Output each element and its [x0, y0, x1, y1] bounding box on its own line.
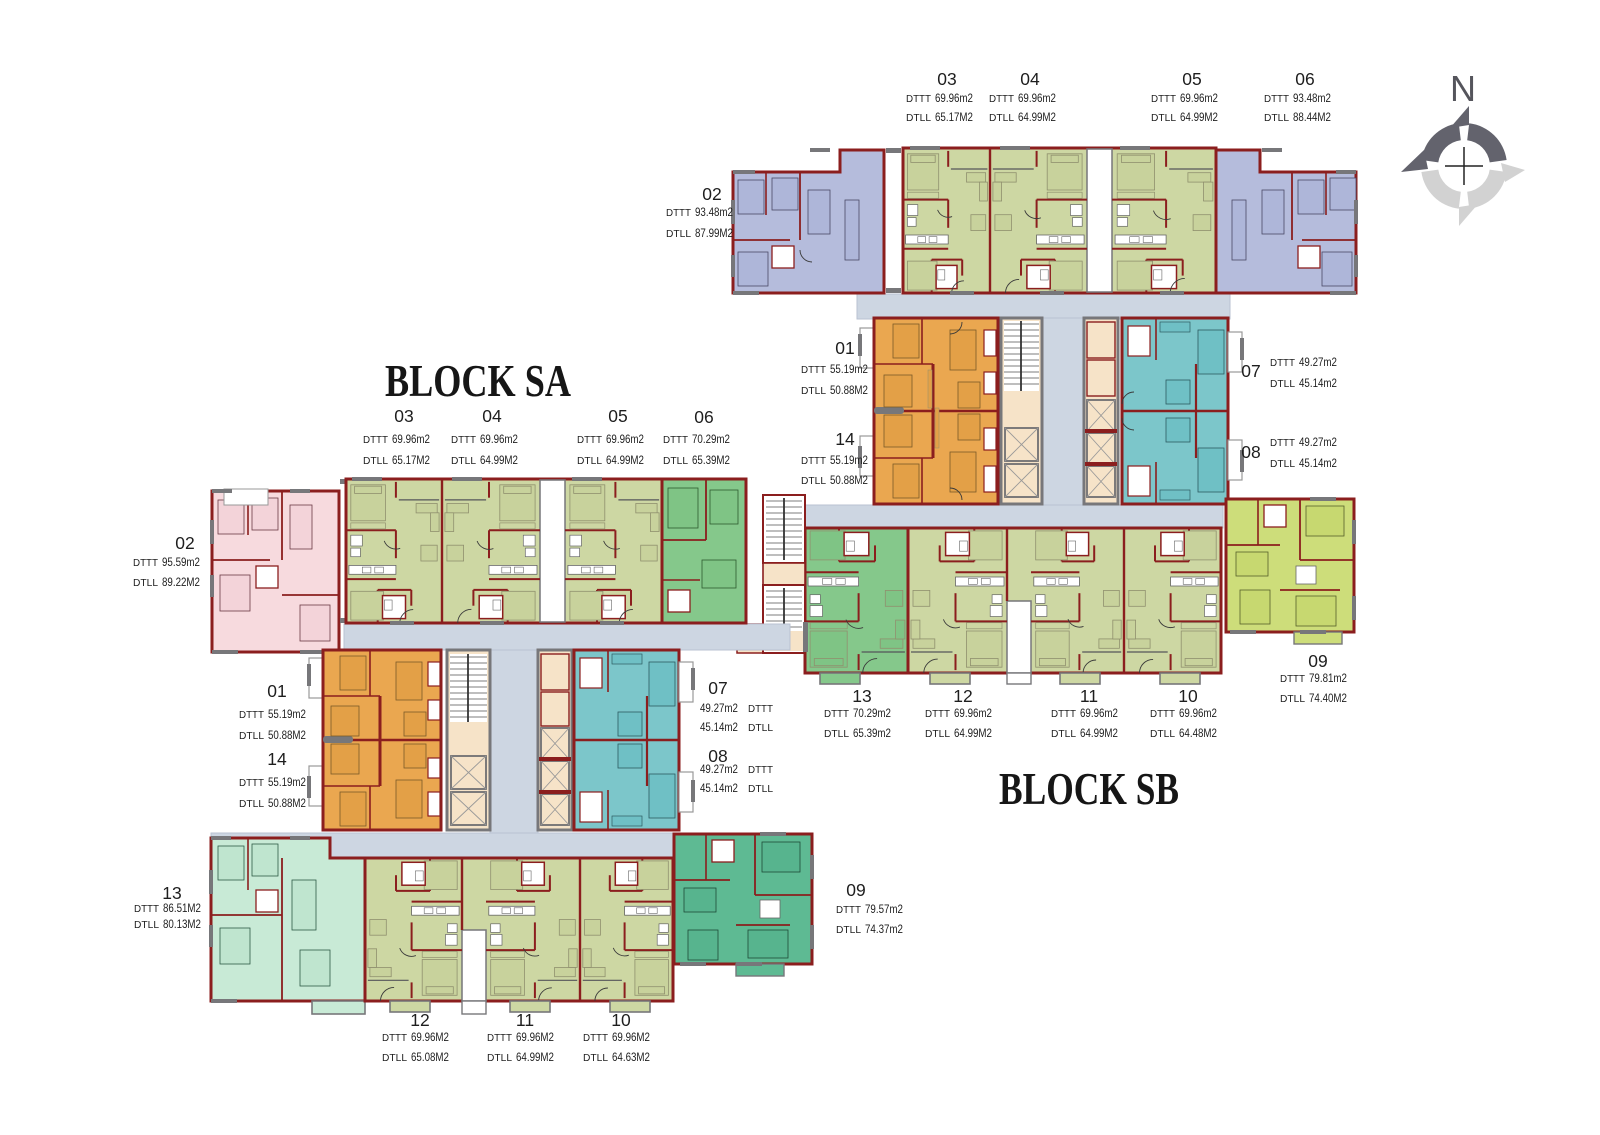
- svg-text:69.96m2: 69.96m2: [1018, 93, 1056, 105]
- svg-text:45.14m2: 45.14m2: [700, 722, 738, 734]
- svg-text:45.14m2: 45.14m2: [1299, 378, 1337, 390]
- svg-text:09: 09: [846, 880, 865, 900]
- svg-text:DTLL: DTLL: [748, 784, 773, 795]
- svg-text:DTLL: DTLL: [239, 731, 264, 742]
- svg-text:05: 05: [1182, 69, 1201, 89]
- svg-text:DTTT: DTTT: [134, 904, 159, 915]
- svg-text:69.96M2: 69.96M2: [612, 1032, 650, 1044]
- svg-text:64.99M2: 64.99M2: [954, 728, 992, 740]
- svg-text:10: 10: [611, 1010, 631, 1030]
- svg-text:49.27m2: 49.27m2: [1299, 357, 1337, 369]
- svg-text:64.99M2: 64.99M2: [480, 455, 518, 467]
- svg-text:07: 07: [708, 678, 727, 698]
- svg-text:09: 09: [1308, 651, 1327, 671]
- svg-text:49.27m2: 49.27m2: [700, 764, 738, 776]
- svg-text:50.88M2: 50.88M2: [268, 798, 306, 810]
- svg-text:04: 04: [1020, 69, 1040, 89]
- svg-text:55.19m2: 55.19m2: [830, 455, 868, 467]
- svg-text:55.19m2: 55.19m2: [268, 777, 306, 789]
- svg-text:14: 14: [267, 749, 287, 769]
- svg-text:50.88M2: 50.88M2: [830, 475, 868, 487]
- svg-text:08: 08: [708, 746, 727, 766]
- svg-text:79.57m2: 79.57m2: [865, 904, 903, 916]
- svg-text:DTLL: DTLL: [989, 113, 1014, 124]
- svg-text:DTLL: DTLL: [1270, 459, 1295, 470]
- svg-text:49.27m2: 49.27m2: [1299, 437, 1337, 449]
- svg-text:DTTT: DTTT: [1151, 94, 1176, 105]
- svg-text:DTTT: DTTT: [1051, 709, 1076, 720]
- svg-text:DTLL: DTLL: [663, 456, 688, 467]
- svg-text:DTLL: DTLL: [836, 925, 861, 936]
- svg-text:49.27m2: 49.27m2: [700, 703, 738, 715]
- svg-text:93.48m2: 93.48m2: [695, 207, 733, 219]
- svg-text:DTLL: DTLL: [666, 229, 691, 240]
- svg-text:05: 05: [608, 406, 627, 426]
- svg-text:DTTT: DTTT: [801, 456, 826, 467]
- svg-text:69.96m2: 69.96m2: [392, 434, 430, 446]
- svg-text:69.96m2: 69.96m2: [1080, 708, 1118, 720]
- svg-text:69.96M2: 69.96M2: [516, 1032, 554, 1044]
- svg-text:69.96m2: 69.96m2: [1179, 708, 1217, 720]
- svg-text:95.59m2: 95.59m2: [162, 557, 200, 569]
- svg-text:DTTT: DTTT: [133, 558, 158, 569]
- svg-text:DTTT: DTTT: [487, 1033, 512, 1044]
- svg-text:02: 02: [175, 533, 194, 553]
- svg-text:80.13M2: 80.13M2: [163, 919, 201, 931]
- svg-text:DTLL: DTLL: [1270, 379, 1295, 390]
- svg-text:69.96m2: 69.96m2: [606, 434, 644, 446]
- svg-text:DTTT: DTTT: [577, 435, 602, 446]
- svg-text:69.96m2: 69.96m2: [935, 93, 973, 105]
- svg-text:DTLL: DTLL: [239, 799, 264, 810]
- svg-text:55.19m2: 55.19m2: [268, 709, 306, 721]
- svg-text:02: 02: [702, 184, 721, 204]
- svg-text:74.37m2: 74.37m2: [865, 924, 903, 936]
- svg-text:DTTT: DTTT: [663, 435, 688, 446]
- svg-text:14: 14: [835, 429, 855, 449]
- svg-text:01: 01: [835, 338, 854, 358]
- svg-text:64.99M2: 64.99M2: [1080, 728, 1118, 740]
- svg-text:DTLL: DTLL: [1150, 729, 1175, 740]
- svg-text:12: 12: [410, 1010, 429, 1030]
- svg-text:DTTT: DTTT: [1270, 358, 1295, 369]
- svg-text:DTLL: DTLL: [133, 578, 158, 589]
- svg-text:DTTT: DTTT: [451, 435, 476, 446]
- svg-text:65.08M2: 65.08M2: [411, 1052, 449, 1064]
- svg-text:88.44M2: 88.44M2: [1293, 112, 1331, 124]
- svg-text:BLOCK SB: BLOCK SB: [999, 763, 1179, 814]
- svg-text:70.29m2: 70.29m2: [853, 708, 891, 720]
- svg-text:DTLL: DTLL: [583, 1053, 608, 1064]
- svg-text:DTLL: DTLL: [134, 920, 159, 931]
- svg-text:N: N: [1450, 68, 1476, 109]
- svg-text:DTTT: DTTT: [239, 778, 264, 789]
- svg-text:DTTT: DTTT: [748, 765, 773, 776]
- svg-text:DTLL: DTLL: [1051, 729, 1076, 740]
- svg-text:DTTT: DTTT: [824, 709, 849, 720]
- svg-text:06: 06: [694, 407, 713, 427]
- svg-text:DTLL: DTLL: [748, 723, 773, 734]
- svg-text:DTLL: DTLL: [925, 729, 950, 740]
- svg-text:DTTT: DTTT: [1280, 674, 1305, 685]
- svg-text:69.96M2: 69.96M2: [411, 1032, 449, 1044]
- svg-text:13: 13: [852, 686, 871, 706]
- svg-text:DTTT: DTTT: [1264, 94, 1289, 105]
- svg-text:13: 13: [162, 883, 181, 903]
- svg-text:DTLL: DTLL: [1151, 113, 1176, 124]
- svg-text:64.63M2: 64.63M2: [612, 1052, 650, 1064]
- svg-text:BLOCK SA: BLOCK SA: [385, 355, 571, 406]
- svg-text:69.96m2: 69.96m2: [954, 708, 992, 720]
- svg-text:DTTT: DTTT: [906, 94, 931, 105]
- svg-text:70.29m2: 70.29m2: [692, 434, 730, 446]
- svg-text:DTTT: DTTT: [801, 365, 826, 376]
- svg-text:93.48m2: 93.48m2: [1293, 93, 1331, 105]
- svg-text:08: 08: [1241, 442, 1260, 462]
- svg-text:86.51M2: 86.51M2: [163, 903, 201, 915]
- svg-text:65.17M2: 65.17M2: [392, 455, 430, 467]
- svg-text:DTTT: DTTT: [1150, 709, 1175, 720]
- svg-text:DTTT: DTTT: [1270, 438, 1295, 449]
- svg-text:DTLL: DTLL: [382, 1053, 407, 1064]
- svg-text:74.40M2: 74.40M2: [1309, 693, 1347, 705]
- svg-text:12: 12: [953, 686, 972, 706]
- svg-text:50.88M2: 50.88M2: [830, 385, 868, 397]
- svg-text:64.99M2: 64.99M2: [1180, 112, 1218, 124]
- svg-text:64.99M2: 64.99M2: [516, 1052, 554, 1064]
- svg-text:50.88M2: 50.88M2: [268, 730, 306, 742]
- svg-text:55.19m2: 55.19m2: [830, 364, 868, 376]
- svg-text:DTTT: DTTT: [666, 208, 691, 219]
- svg-text:64.99M2: 64.99M2: [606, 455, 644, 467]
- svg-text:DTTT: DTTT: [363, 435, 388, 446]
- svg-text:04: 04: [482, 406, 502, 426]
- svg-text:69.96m2: 69.96m2: [1180, 93, 1218, 105]
- svg-text:45.14m2: 45.14m2: [700, 783, 738, 795]
- svg-text:11: 11: [1080, 686, 1098, 706]
- svg-text:DTTT: DTTT: [836, 905, 861, 916]
- svg-text:87.99M2: 87.99M2: [695, 228, 733, 240]
- svg-text:DTLL: DTLL: [487, 1053, 512, 1064]
- svg-text:69.96m2: 69.96m2: [480, 434, 518, 446]
- svg-text:11: 11: [516, 1010, 534, 1030]
- svg-text:06: 06: [1295, 69, 1314, 89]
- svg-text:65.17M2: 65.17M2: [935, 112, 973, 124]
- svg-text:DTLL: DTLL: [824, 729, 849, 740]
- svg-text:DTTT: DTTT: [748, 704, 773, 715]
- svg-text:DTTT: DTTT: [239, 710, 264, 721]
- svg-text:65.39M2: 65.39M2: [692, 455, 730, 467]
- svg-text:DTTT: DTTT: [989, 94, 1014, 105]
- svg-text:64.99M2: 64.99M2: [1018, 112, 1056, 124]
- svg-text:03: 03: [394, 406, 413, 426]
- svg-text:DTLL: DTLL: [906, 113, 931, 124]
- svg-text:65.39m2: 65.39m2: [853, 728, 891, 740]
- svg-text:DTLL: DTLL: [801, 386, 826, 397]
- svg-text:DTLL: DTLL: [363, 456, 388, 467]
- svg-text:DTTT: DTTT: [583, 1033, 608, 1044]
- svg-text:89.22M2: 89.22M2: [162, 577, 200, 589]
- svg-text:DTTT: DTTT: [925, 709, 950, 720]
- svg-text:64.48M2: 64.48M2: [1179, 728, 1217, 740]
- svg-text:01: 01: [267, 681, 286, 701]
- svg-text:DTLL: DTLL: [801, 476, 826, 487]
- svg-text:DTTT: DTTT: [382, 1033, 407, 1044]
- svg-text:79.81m2: 79.81m2: [1309, 673, 1347, 685]
- svg-text:DTLL: DTLL: [451, 456, 476, 467]
- svg-text:DTLL: DTLL: [1264, 113, 1289, 124]
- svg-text:10: 10: [1178, 686, 1198, 706]
- svg-text:45.14m2: 45.14m2: [1299, 458, 1337, 470]
- svg-text:DTLL: DTLL: [1280, 694, 1305, 705]
- svg-text:07: 07: [1241, 361, 1260, 381]
- svg-text:03: 03: [937, 69, 956, 89]
- svg-text:DTLL: DTLL: [577, 456, 602, 467]
